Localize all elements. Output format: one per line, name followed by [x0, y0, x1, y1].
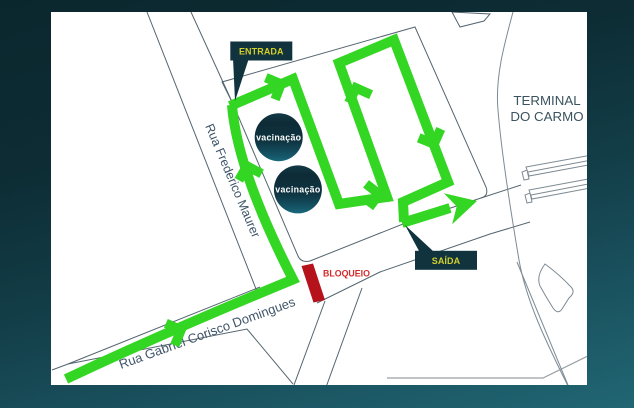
svg-text:TERMINAL: TERMINAL	[513, 93, 580, 108]
svg-text:vacinação: vacinação	[256, 133, 302, 143]
svg-text:vacinação: vacinação	[275, 185, 321, 195]
svg-text:SAÍDA: SAÍDA	[432, 256, 461, 266]
svg-text:ENTRADA: ENTRADA	[239, 47, 284, 57]
svg-text:BLOQUEIO: BLOQUEIO	[323, 269, 370, 279]
svg-text:DO CARMO: DO CARMO	[510, 109, 583, 124]
